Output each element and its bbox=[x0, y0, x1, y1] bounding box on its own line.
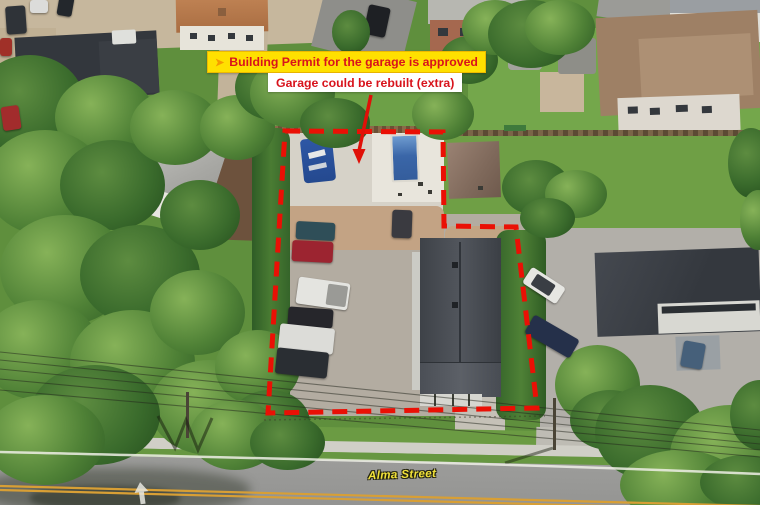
permit-approved-banner: ➤ Building Permit for the garage is appr… bbox=[207, 51, 486, 73]
street-name-label: Alma Street bbox=[368, 468, 437, 482]
rebuild-note-text: Garage could be rebuilt (extra) bbox=[276, 76, 454, 90]
arrow-bullet-icon: ➤ bbox=[215, 56, 224, 69]
property-boundary bbox=[268, 131, 537, 413]
permit-banner-text: Building Permit for the garage is approv… bbox=[229, 55, 478, 69]
aerial-photo: ➤ Building Permit for the garage is appr… bbox=[0, 0, 760, 505]
rebuild-note: Garage could be rebuilt (extra) bbox=[268, 73, 462, 92]
